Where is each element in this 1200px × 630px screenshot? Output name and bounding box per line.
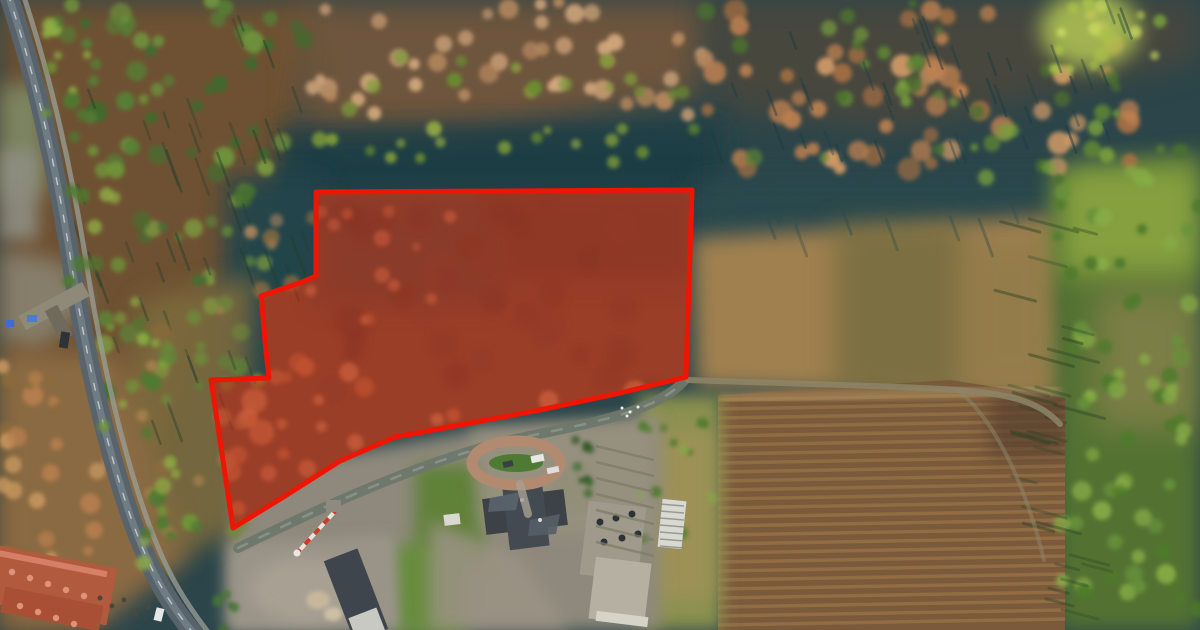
blue-tarp [5,320,14,327]
blue-tarp [27,315,37,322]
mast-base [326,500,341,512]
field-east-strip [965,240,1055,390]
aerial-scene-svg [0,0,1200,630]
forest-east-sunlit [1060,165,1200,275]
parcel-aerial-photo [0,0,1200,630]
garden-shed [443,513,460,526]
rocks-west [0,150,38,240]
mast-dish [294,550,301,557]
field-east-shadow [835,225,965,395]
sand-pile [324,607,342,621]
sand-pile [306,591,330,609]
